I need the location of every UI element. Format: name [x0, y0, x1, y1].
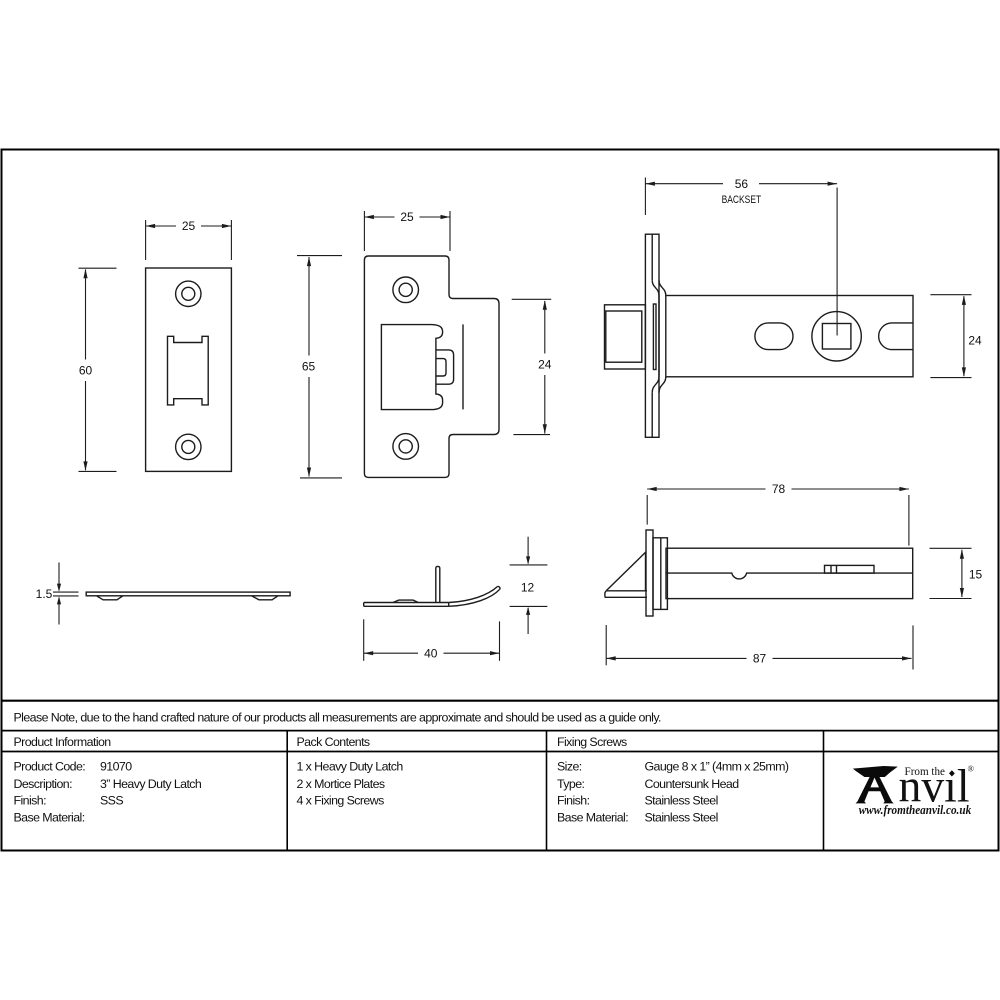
svg-text:From the: From the — [905, 766, 946, 778]
svg-text:BACKSET: BACKSET — [722, 194, 762, 206]
svg-text:60: 60 — [79, 364, 93, 378]
svg-text:24: 24 — [538, 358, 552, 372]
svg-text:Base Material:: Base Material: — [557, 810, 628, 824]
svg-text:87: 87 — [753, 652, 767, 666]
svg-text:25: 25 — [400, 210, 414, 224]
svg-text:1.5: 1.5 — [36, 587, 53, 601]
svg-text:56: 56 — [735, 177, 749, 191]
svg-text:2 x Mortice Plates: 2 x Mortice Plates — [297, 777, 385, 791]
svg-text:1 x Heavy Duty Latch: 1 x Heavy Duty Latch — [297, 760, 404, 774]
svg-text:Finish:: Finish: — [14, 794, 47, 808]
svg-text:Description:: Description: — [14, 777, 73, 791]
svg-text:Stainless Steel: Stainless Steel — [645, 810, 718, 824]
svg-text:Please Note, due to the hand c: Please Note, due to the hand crafted nat… — [14, 711, 662, 725]
svg-text:®: ® — [968, 763, 975, 773]
svg-text:SSS: SSS — [100, 794, 123, 808]
svg-text:40: 40 — [424, 646, 438, 660]
svg-text:Size:: Size: — [557, 760, 582, 774]
svg-text:Pack Contents: Pack Contents — [297, 735, 370, 749]
svg-text:Finish:: Finish: — [557, 794, 590, 808]
svg-text:15: 15 — [969, 567, 983, 581]
svg-text:25: 25 — [182, 219, 196, 233]
svg-text:91070: 91070 — [100, 760, 132, 774]
svg-text:3” Heavy Duty Latch: 3” Heavy Duty Latch — [100, 777, 202, 791]
svg-text:4 x Fixing Screws: 4 x Fixing Screws — [297, 794, 385, 808]
svg-text:Product Information: Product Information — [14, 735, 112, 749]
svg-text:24: 24 — [968, 334, 982, 348]
svg-text:78: 78 — [772, 482, 786, 496]
svg-text:Countersunk Head: Countersunk Head — [645, 777, 740, 791]
svg-text:Gauge 8 x 1” (4mm x 25mm): Gauge 8 x 1” (4mm x 25mm) — [645, 760, 789, 774]
svg-text:www.fromtheanvil.co.uk: www.fromtheanvil.co.uk — [859, 802, 972, 817]
svg-text:65: 65 — [302, 360, 316, 374]
svg-text:Fixing Screws: Fixing Screws — [557, 735, 627, 749]
svg-text:Stainless Steel: Stainless Steel — [645, 794, 718, 808]
svg-text:12: 12 — [521, 580, 535, 594]
svg-text:Product Code:: Product Code: — [14, 760, 86, 774]
svg-text:Type:: Type: — [557, 777, 585, 791]
svg-text:Base Material:: Base Material: — [14, 810, 85, 824]
